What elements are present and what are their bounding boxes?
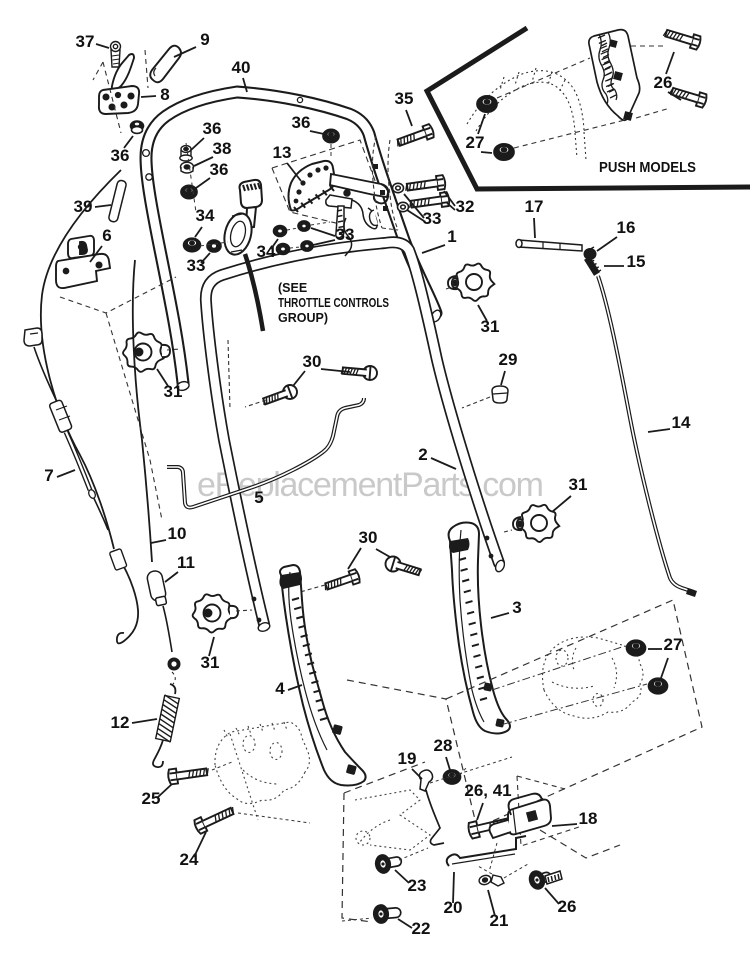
svg-text:36: 36 <box>203 119 222 138</box>
svg-text:31: 31 <box>481 317 500 336</box>
svg-text:19: 19 <box>398 749 417 768</box>
svg-text:17: 17 <box>525 197 544 216</box>
svg-text:33: 33 <box>336 225 355 244</box>
svg-text:10: 10 <box>168 524 187 543</box>
svg-text:1: 1 <box>447 227 456 246</box>
svg-text:16: 16 <box>617 218 636 237</box>
svg-text:26: 26 <box>558 897 577 916</box>
svg-text:4: 4 <box>275 679 285 698</box>
svg-text:26, 41: 26, 41 <box>464 781 511 800</box>
svg-text:GROUP): GROUP) <box>278 311 328 325</box>
svg-text:23: 23 <box>408 876 427 895</box>
svg-text:37: 37 <box>76 32 95 51</box>
svg-text:36: 36 <box>111 146 130 165</box>
svg-text:7: 7 <box>44 466 53 485</box>
svg-text:14: 14 <box>672 413 691 432</box>
svg-text:5: 5 <box>254 488 263 507</box>
svg-text:28: 28 <box>434 736 453 755</box>
svg-text:PUSH MODELS: PUSH MODELS <box>599 159 696 176</box>
svg-text:33: 33 <box>187 256 206 275</box>
svg-text:6: 6 <box>102 226 111 245</box>
svg-text:31: 31 <box>569 475 588 494</box>
svg-text:35: 35 <box>395 89 414 108</box>
svg-text:2: 2 <box>418 445 427 464</box>
svg-text:27: 27 <box>466 133 485 152</box>
svg-text:34: 34 <box>196 206 215 225</box>
svg-text:36: 36 <box>210 160 229 179</box>
svg-text:36: 36 <box>292 113 311 132</box>
svg-text:40: 40 <box>232 58 251 77</box>
svg-text:15: 15 <box>627 252 646 271</box>
svg-text:25: 25 <box>142 789 161 808</box>
svg-text:21: 21 <box>490 911 509 930</box>
svg-text:3: 3 <box>512 598 521 617</box>
svg-text:38: 38 <box>213 139 232 158</box>
svg-text:39: 39 <box>74 197 93 216</box>
svg-text:26: 26 <box>654 73 673 92</box>
svg-text:THROTTLE CONTROLS: THROTTLE CONTROLS <box>278 296 389 310</box>
svg-text:11: 11 <box>177 553 195 572</box>
svg-text:(SEE: (SEE <box>278 281 307 295</box>
svg-text:18: 18 <box>579 809 598 828</box>
svg-text:8: 8 <box>160 85 169 104</box>
svg-text:32: 32 <box>456 197 475 216</box>
svg-text:30: 30 <box>359 528 378 547</box>
svg-text:30: 30 <box>303 352 322 371</box>
svg-text:29: 29 <box>499 350 518 369</box>
svg-text:9: 9 <box>200 30 209 49</box>
svg-text:27: 27 <box>664 635 683 654</box>
svg-text:13: 13 <box>273 143 292 162</box>
svg-text:eReplacementParts.com: eReplacementParts.com <box>197 466 544 504</box>
svg-text:33: 33 <box>423 209 442 228</box>
svg-text:12: 12 <box>111 713 130 732</box>
svg-text:31: 31 <box>201 653 220 672</box>
svg-text:22: 22 <box>412 919 431 938</box>
